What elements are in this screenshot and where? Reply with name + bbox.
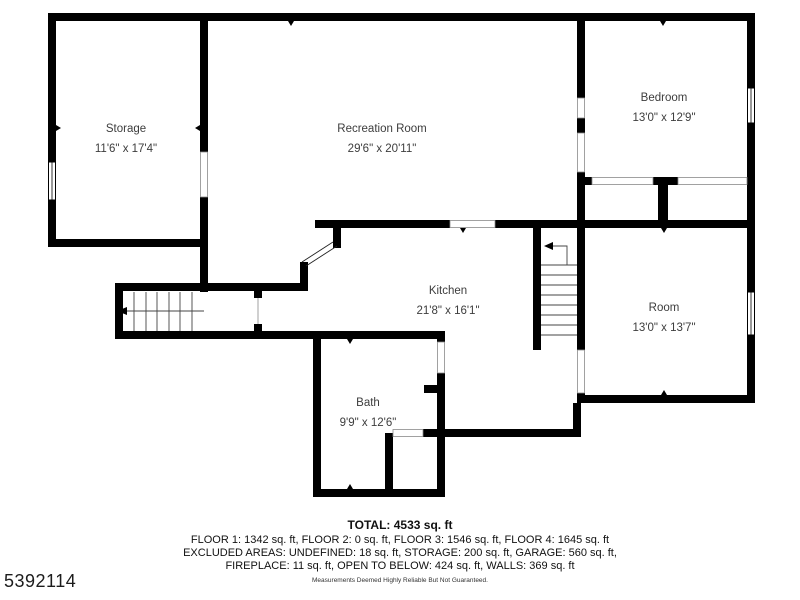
room-label-kitchen: Kitchen 21'8" x 16'1" (416, 281, 479, 321)
dimension-tick (460, 228, 466, 233)
room-dimensions: 11'6" x 17'4" (95, 139, 157, 159)
walls (48, 13, 755, 497)
wall-segment (200, 197, 208, 292)
wall-segment (577, 177, 592, 185)
door-opening (393, 430, 423, 437)
staircase-left (117, 292, 204, 331)
room-label-room: Room 13'0" x 13'7" (632, 298, 695, 338)
door-opening (578, 133, 585, 172)
room-name: Bedroom (632, 88, 695, 108)
wall-segment (747, 13, 755, 88)
room-label-bath: Bath 9'9" x 12'6" (340, 393, 397, 433)
wall-segment (437, 331, 445, 342)
staircase-center (541, 242, 577, 335)
wall-segment (747, 123, 755, 292)
wall-segment (300, 262, 308, 291)
wall-segment (653, 177, 678, 185)
dimension-tick (195, 125, 200, 131)
door-opening (578, 350, 585, 393)
wall-segment (115, 331, 445, 339)
wall-segment (115, 283, 308, 291)
dimension-tick (288, 21, 294, 26)
wall-segment (333, 228, 341, 248)
wall-segment (200, 21, 208, 152)
wall-segment (254, 324, 262, 331)
room-name: Kitchen (416, 281, 479, 301)
dimension-tick (661, 228, 667, 233)
wall-segment (577, 118, 585, 133)
wall-segment (48, 239, 208, 247)
wall-segment (437, 429, 581, 437)
room-name: Bath (340, 393, 397, 413)
stair-direction-arrow-icon (544, 242, 553, 250)
door-opening (201, 152, 208, 197)
room-label-recreation-room: Recreation Room 29'6" x 20'11" (337, 119, 426, 159)
wall-segment (577, 172, 585, 350)
room-name: Recreation Room (337, 119, 426, 139)
room-label-bedroom: Bedroom 13'0" x 12'9" (632, 88, 695, 128)
room-dimensions: 29'6" x 20'11" (337, 139, 426, 159)
dimension-tick (661, 390, 667, 395)
wall-segment (48, 13, 755, 21)
wall-segment (424, 385, 445, 393)
wall-segment (313, 331, 321, 497)
wall-segment (423, 429, 445, 437)
window-icon (748, 88, 755, 123)
listing-id: 5392114 (4, 571, 76, 592)
dimension-tick (56, 125, 61, 131)
dimension-tick (660, 21, 666, 26)
wall-segment (495, 220, 755, 228)
door-opening (592, 178, 653, 185)
window-icon (748, 292, 755, 335)
room-dimensions: 13'0" x 13'7" (632, 318, 695, 338)
total-area-text: TOTAL: 4533 sq. ft (0, 518, 800, 532)
wall-segment (315, 220, 450, 228)
door-opening (438, 342, 445, 373)
wall-segment (533, 228, 541, 350)
dimension-tick (347, 484, 353, 489)
floorplan-page: Storage 11'6" x 17'4" Recreation Room 29… (0, 0, 800, 600)
disclaimer-text: Measurements Deemed Highly Reliable But … (0, 577, 800, 584)
excluded-areas-text: EXCLUDED AREAS: UNDEFINED: 18 sq. ft, ST… (0, 547, 800, 559)
wall-segment (658, 185, 668, 223)
wall-segment (747, 335, 755, 403)
wall-segment (313, 489, 445, 497)
floor-areas-text: FLOOR 1: 1342 sq. ft, FLOOR 2: 0 sq. ft,… (0, 534, 800, 546)
room-label-storage: Storage 11'6" x 17'4" (95, 119, 157, 159)
door-opening (678, 178, 747, 185)
room-dimensions: 9'9" x 12'6" (340, 413, 397, 433)
wall-segment (385, 433, 393, 497)
wall-segment (48, 13, 56, 162)
wall-segment (577, 395, 755, 403)
window-icon (49, 162, 56, 200)
door-opening (450, 221, 495, 228)
room-dimensions: 21'8" x 16'1" (416, 301, 479, 321)
room-name: Storage (95, 119, 157, 139)
dimension-tick (347, 339, 353, 344)
excluded-areas-text-2: FIREPLACE: 11 sq. ft, OPEN TO BELOW: 424… (0, 560, 800, 572)
room-dimensions: 13'0" x 12'9" (632, 108, 695, 128)
room-name: Room (632, 298, 695, 318)
door-openings (201, 98, 748, 437)
wall-segment (254, 291, 262, 298)
wall-segment (577, 21, 585, 98)
door-opening (578, 98, 585, 118)
